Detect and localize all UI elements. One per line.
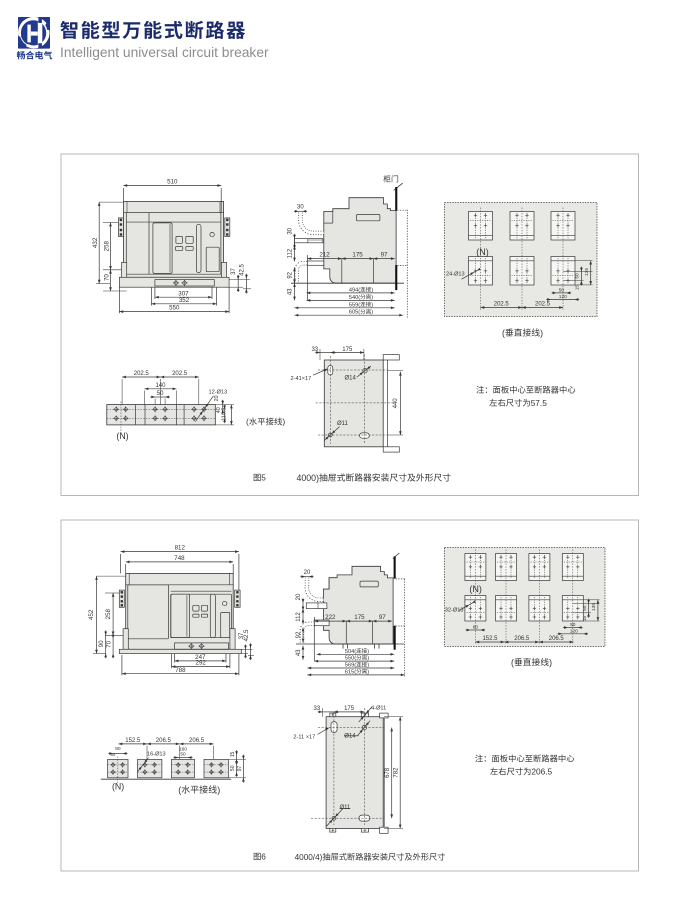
svg-text:112: 112 xyxy=(296,612,302,622)
svg-text:206.5: 206.5 xyxy=(156,738,172,744)
svg-text:6: 6 xyxy=(261,852,266,862)
svg-text:30: 30 xyxy=(288,227,294,234)
svg-text:202.5: 202.5 xyxy=(134,371,150,377)
svg-text:33: 33 xyxy=(314,706,321,712)
svg-text:135: 135 xyxy=(584,268,590,276)
svg-text:42.5: 42.5 xyxy=(244,629,250,641)
svg-text:175: 175 xyxy=(342,347,353,353)
svg-text:222: 222 xyxy=(325,614,336,621)
svg-text:540(: 540( xyxy=(349,295,360,301)
svg-text:50: 50 xyxy=(559,287,565,293)
svg-text:440: 440 xyxy=(393,398,399,409)
svg-text:605(: 605( xyxy=(349,310,360,316)
svg-text:50: 50 xyxy=(582,605,588,611)
svg-text:Intelligent universal circuit: Intelligent universal circuit breaker xyxy=(60,45,269,60)
svg-text:175: 175 xyxy=(354,614,365,621)
svg-text:432: 432 xyxy=(92,237,99,248)
svg-text:135: 135 xyxy=(591,603,597,611)
svg-text:206.5: 206.5 xyxy=(549,636,565,642)
svg-text:452: 452 xyxy=(88,609,95,620)
svg-text:112: 112 xyxy=(288,248,294,258)
svg-text:97: 97 xyxy=(381,251,388,258)
svg-text:678: 678 xyxy=(385,767,391,778)
svg-text:2-41×17: 2-41×17 xyxy=(291,376,312,382)
svg-text:32-Ø13: 32-Ø13 xyxy=(445,608,464,614)
svg-text:50: 50 xyxy=(157,391,164,397)
svg-text:812: 812 xyxy=(175,545,186,552)
svg-text:57.5: 57.5 xyxy=(531,398,548,408)
svg-text:206.5: 206.5 xyxy=(531,767,552,777)
svg-text:): ) xyxy=(371,302,373,308)
svg-text:258: 258 xyxy=(103,240,110,251)
svg-text:20: 20 xyxy=(296,593,302,600)
svg-text:782: 782 xyxy=(394,767,400,778)
svg-text:120: 120 xyxy=(570,628,578,634)
svg-text:30: 30 xyxy=(297,205,304,211)
svg-text:20: 20 xyxy=(214,395,220,401)
svg-text:202.5: 202.5 xyxy=(172,371,188,377)
svg-text:97: 97 xyxy=(237,766,243,772)
svg-text:258: 258 xyxy=(105,608,112,619)
svg-text:90: 90 xyxy=(99,640,105,647)
svg-text:24-Ø13: 24-Ø13 xyxy=(446,272,465,278)
svg-text:569(: 569( xyxy=(345,663,356,669)
svg-text:Ø14: Ø14 xyxy=(344,733,356,739)
svg-text:550: 550 xyxy=(169,305,180,312)
svg-text:): ) xyxy=(367,656,369,662)
svg-text:43: 43 xyxy=(296,649,302,656)
svg-text:): ) xyxy=(371,295,373,301)
svg-text:Ø11: Ø11 xyxy=(337,421,349,427)
svg-text:202.5: 202.5 xyxy=(494,302,510,308)
svg-text:43: 43 xyxy=(288,288,294,295)
svg-text:97: 97 xyxy=(379,614,386,621)
svg-text:(: ( xyxy=(178,785,181,795)
svg-text:559(: 559( xyxy=(349,302,360,308)
svg-text:(: ( xyxy=(511,657,514,667)
svg-text:352: 352 xyxy=(179,297,190,304)
svg-text:20: 20 xyxy=(304,570,311,576)
svg-text:510: 510 xyxy=(167,179,178,186)
svg-text:292: 292 xyxy=(196,660,207,667)
svg-text:788: 788 xyxy=(175,667,186,674)
svg-text:152.5: 152.5 xyxy=(482,636,498,642)
svg-text:175: 175 xyxy=(344,706,355,712)
svg-text:160: 160 xyxy=(179,746,187,752)
svg-text:(: ( xyxy=(246,417,249,427)
svg-text:): ) xyxy=(217,785,220,795)
svg-text:202.5: 202.5 xyxy=(535,302,551,308)
svg-text:): ) xyxy=(367,649,369,655)
svg-text:(N): (N) xyxy=(476,247,489,257)
svg-text:92: 92 xyxy=(288,271,294,278)
svg-text:Ø11: Ø11 xyxy=(340,805,352,811)
svg-text:15: 15 xyxy=(582,616,588,622)
svg-text:): ) xyxy=(282,417,285,427)
svg-text:80: 80 xyxy=(473,624,479,630)
svg-text:615(: 615( xyxy=(345,669,356,675)
svg-text:2-11 ×17: 2-11 ×17 xyxy=(293,735,315,741)
svg-text:33: 33 xyxy=(311,347,318,353)
svg-text:4000/4): 4000/4) xyxy=(295,853,323,862)
svg-text:50: 50 xyxy=(180,752,186,758)
svg-text:50: 50 xyxy=(230,765,236,771)
svg-text:550(: 550( xyxy=(345,656,356,662)
svg-text:): ) xyxy=(367,669,369,675)
svg-text:37: 37 xyxy=(231,268,237,275)
svg-text:140: 140 xyxy=(155,383,166,389)
svg-text:15: 15 xyxy=(230,752,236,758)
svg-text:70: 70 xyxy=(103,274,110,281)
svg-text:): ) xyxy=(371,287,373,293)
svg-text:12-Ø13: 12-Ø13 xyxy=(209,390,228,396)
svg-text:80: 80 xyxy=(115,746,121,752)
svg-text:70: 70 xyxy=(107,640,113,647)
svg-text:748: 748 xyxy=(174,555,185,562)
svg-text:(: ( xyxy=(502,328,505,338)
svg-text:110.5: 110.5 xyxy=(221,408,227,421)
svg-text:5: 5 xyxy=(261,473,266,483)
svg-text:206.5: 206.5 xyxy=(189,738,205,744)
svg-text:494(: 494( xyxy=(349,287,360,293)
svg-text:92: 92 xyxy=(296,631,302,638)
svg-text:152.5: 152.5 xyxy=(125,738,141,744)
svg-text:Ø14: Ø14 xyxy=(345,376,357,382)
svg-text:15: 15 xyxy=(575,285,581,291)
svg-text:206.5: 206.5 xyxy=(514,636,530,642)
svg-text:): ) xyxy=(367,663,369,669)
svg-text:50: 50 xyxy=(110,752,115,757)
svg-text:4-Ø11: 4-Ø11 xyxy=(371,705,386,711)
svg-text:120: 120 xyxy=(559,294,567,300)
svg-text:50: 50 xyxy=(575,273,581,279)
svg-text:212: 212 xyxy=(319,251,330,258)
svg-text:504(: 504( xyxy=(345,649,356,655)
svg-text:): ) xyxy=(549,657,552,667)
svg-text:175: 175 xyxy=(352,251,363,258)
svg-text:(N): (N) xyxy=(112,781,124,791)
svg-text:50: 50 xyxy=(570,622,576,628)
svg-text:16-Ø13: 16-Ø13 xyxy=(147,751,166,757)
svg-text:(N): (N) xyxy=(116,431,128,441)
svg-text:42.5: 42.5 xyxy=(239,264,245,276)
svg-text:): ) xyxy=(371,310,373,316)
svg-text:4000): 4000) xyxy=(297,473,320,483)
svg-text:): ) xyxy=(540,328,543,338)
